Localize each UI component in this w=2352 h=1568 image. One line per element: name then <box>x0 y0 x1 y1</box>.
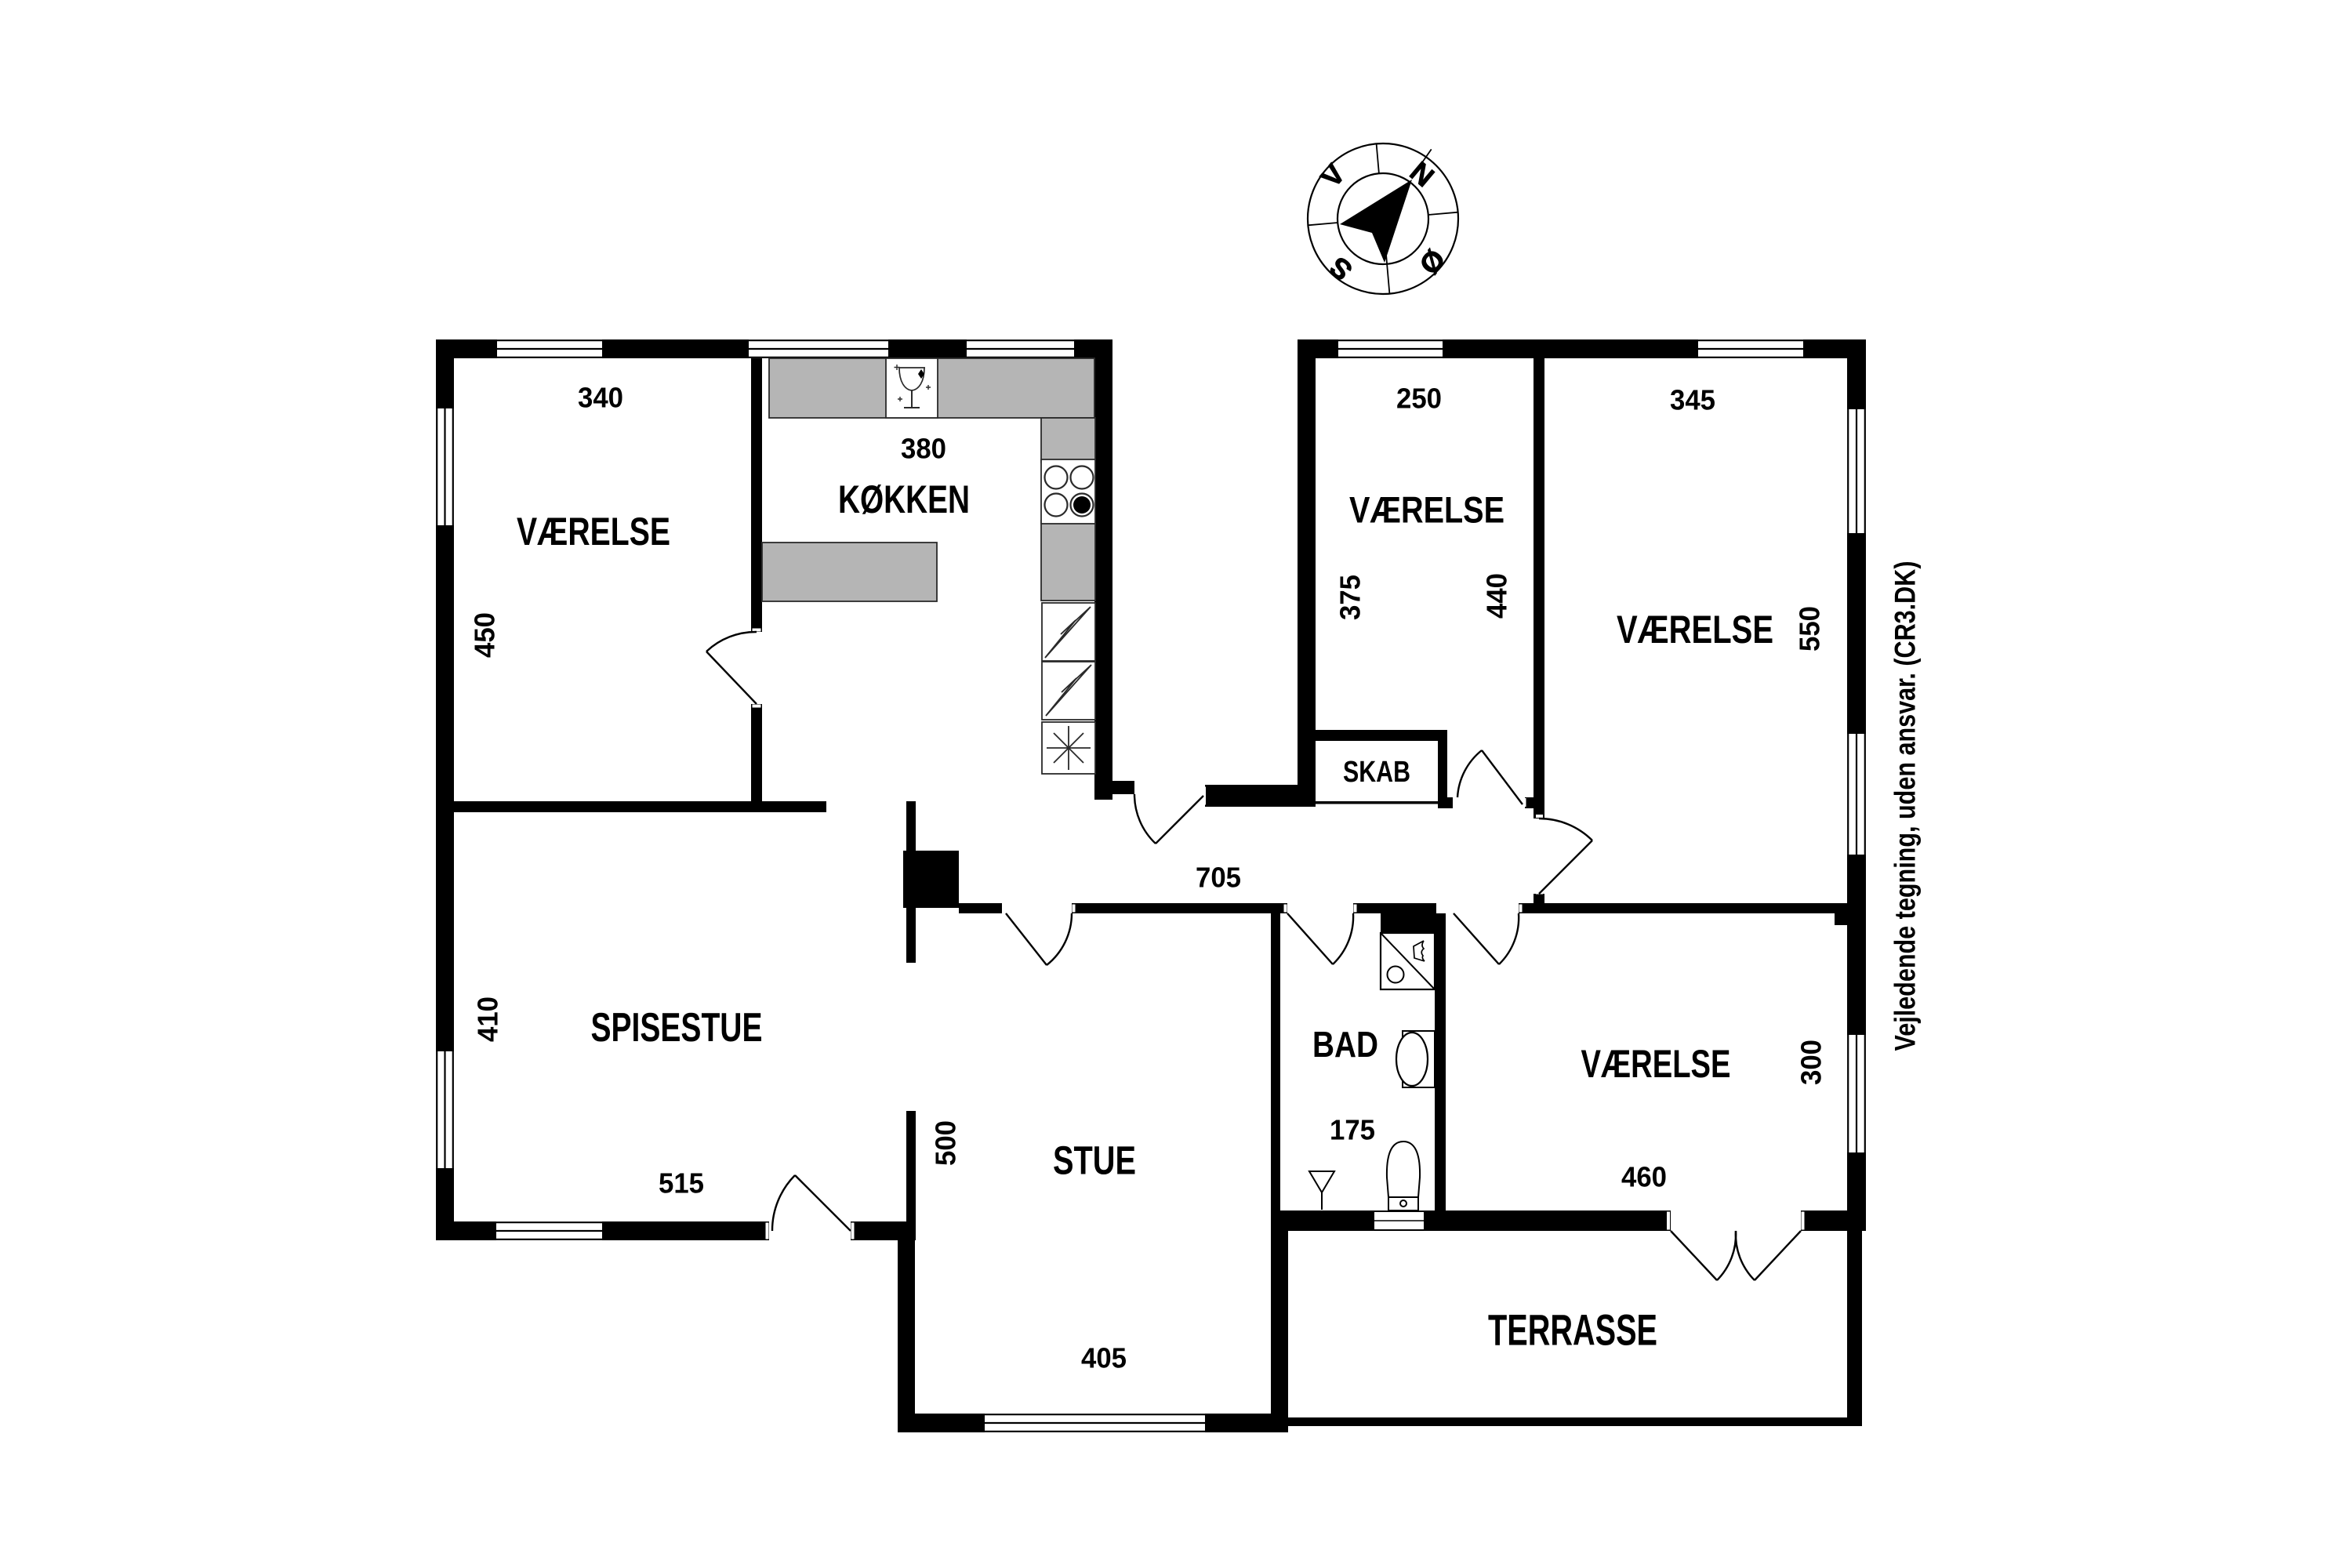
svg-text:VÆRELSE: VÆRELSE <box>1349 489 1504 531</box>
svg-text:515: 515 <box>659 1167 704 1200</box>
svg-text:VÆRELSE: VÆRELSE <box>517 510 670 554</box>
svg-text:340: 340 <box>578 382 623 414</box>
svg-text:STUE: STUE <box>1053 1138 1136 1183</box>
svg-text:450: 450 <box>469 612 501 658</box>
svg-text:BAD: BAD <box>1312 1024 1378 1065</box>
svg-text:VÆRELSE: VÆRELSE <box>1581 1042 1731 1086</box>
svg-text:380: 380 <box>901 433 946 465</box>
svg-text:TERRASSE: TERRASSE <box>1488 1305 1657 1355</box>
svg-text:175: 175 <box>1330 1114 1375 1146</box>
svg-text:Vejledende tegning, uden ansva: Vejledende tegning, uden ansvar. (CR3.DK… <box>1889 561 1922 1051</box>
svg-text:KØKKEN: KØKKEN <box>838 477 970 521</box>
svg-text:345: 345 <box>1670 384 1715 416</box>
svg-text:460: 460 <box>1621 1161 1667 1193</box>
svg-text:440: 440 <box>1481 573 1513 619</box>
svg-text:410: 410 <box>472 996 504 1042</box>
svg-text:500: 500 <box>930 1120 962 1166</box>
svg-text:SKAB: SKAB <box>1343 756 1410 789</box>
svg-text:705: 705 <box>1196 862 1241 894</box>
svg-text:375: 375 <box>1334 575 1367 620</box>
svg-text:405: 405 <box>1081 1342 1127 1374</box>
svg-text:300: 300 <box>1795 1040 1828 1085</box>
svg-text:SPISESTUE: SPISESTUE <box>591 1005 763 1051</box>
svg-text:250: 250 <box>1396 383 1442 415</box>
svg-text:550: 550 <box>1794 606 1826 652</box>
svg-text:VÆRELSE: VÆRELSE <box>1617 608 1773 652</box>
